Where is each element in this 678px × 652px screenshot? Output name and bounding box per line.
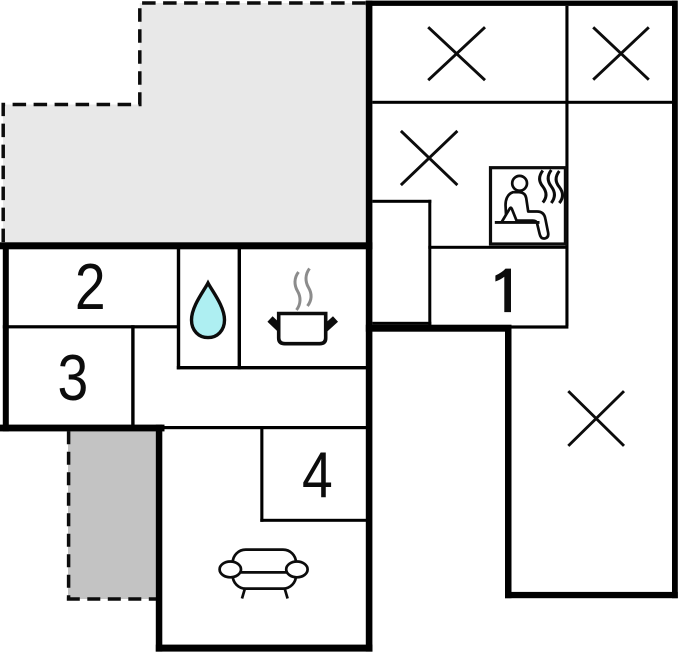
svg-text:2: 2 <box>75 250 106 323</box>
svg-text:4: 4 <box>302 438 333 511</box>
svg-text:3: 3 <box>58 341 89 414</box>
